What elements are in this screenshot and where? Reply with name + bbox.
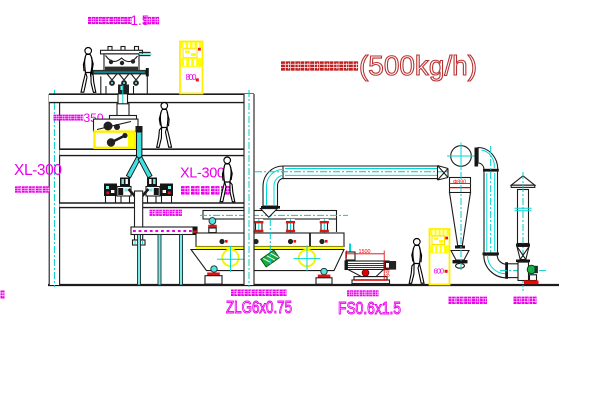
svg-text:XL-300: XL-300 (14, 162, 62, 179)
svg-text:Φ800: Φ800 (453, 180, 466, 186)
svg-text:(500kg/h): (500kg/h) (359, 50, 477, 81)
svg-text:800: 800 (186, 73, 198, 82)
svg-text:FS0.6x1.5: FS0.6x1.5 (338, 298, 401, 318)
svg-text:1500: 1500 (359, 249, 371, 255)
svg-text:XL-300: XL-300 (180, 166, 225, 182)
svg-text:345: 345 (386, 268, 392, 277)
svg-text:ZLG6x0.75: ZLG6x0.75 (226, 297, 292, 317)
svg-text:600: 600 (434, 267, 445, 276)
